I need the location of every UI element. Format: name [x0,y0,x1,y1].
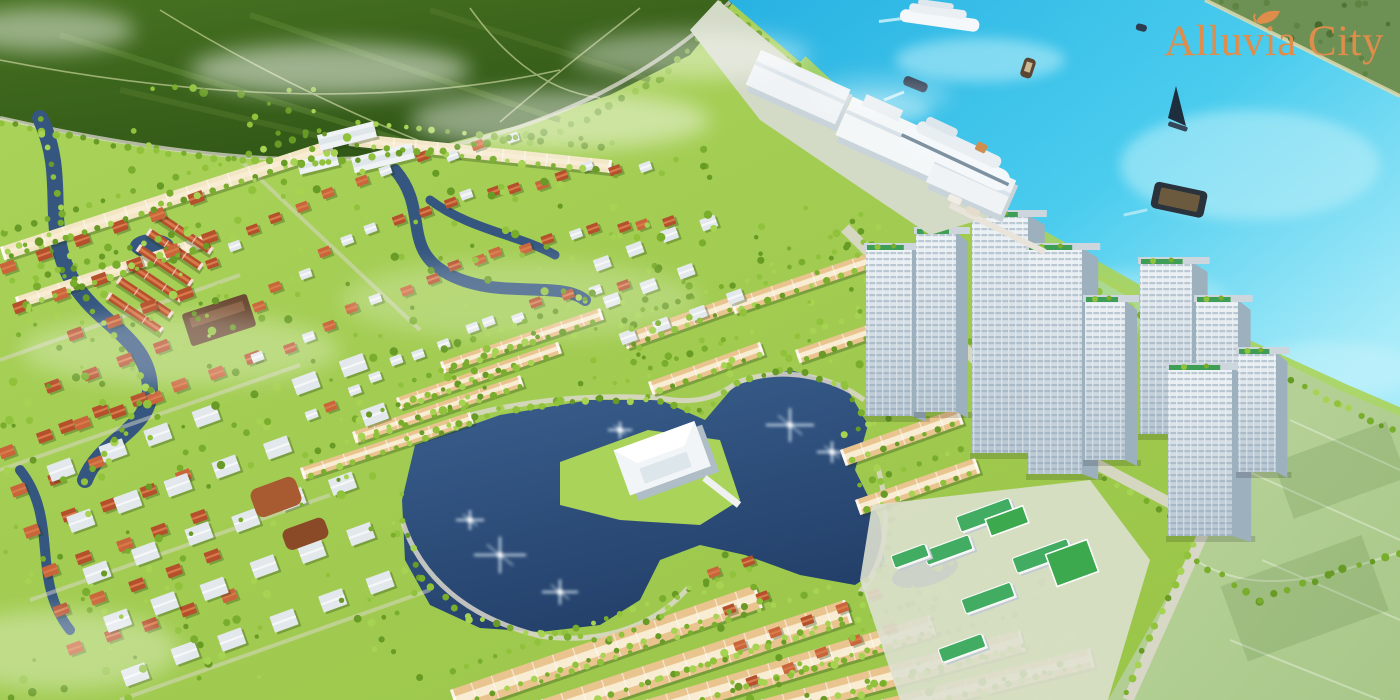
tree [1204,567,1211,574]
tree [99,254,105,260]
tree [505,159,509,163]
tree [459,384,465,390]
tree [449,367,454,372]
tree [67,289,72,294]
tree [478,659,483,664]
tree [807,300,811,304]
tree [223,619,230,626]
tree [757,352,763,358]
tree [493,620,501,628]
tree [1177,568,1184,575]
tree [128,262,135,269]
tree [53,312,60,319]
tree [797,661,802,666]
tree [338,157,346,165]
tree [648,366,653,371]
tree [665,605,671,611]
tree [0,422,6,428]
tree [801,634,805,638]
tree [504,686,510,692]
tree [697,408,702,413]
tree [629,606,636,613]
tree [267,102,271,106]
tree [142,184,148,190]
tree [535,161,540,166]
tree [46,384,51,389]
tree [237,90,245,98]
tree [289,136,296,143]
tree [398,382,404,388]
tree [702,345,708,351]
tree [688,630,693,635]
tree [643,644,648,649]
tree [877,478,884,485]
tree [504,349,509,354]
tree [356,417,363,424]
tree [410,545,417,552]
tree [9,278,15,284]
tree [863,506,870,513]
tree [169,291,178,300]
tree [712,622,718,628]
tree [63,235,69,241]
tree [195,222,201,228]
tree [433,426,440,433]
tree [787,367,793,373]
tree [339,598,344,603]
tree [175,627,182,634]
tree [634,234,641,241]
tree [534,639,541,646]
tree [326,573,331,578]
tree [1359,413,1365,419]
tree [270,520,277,527]
tree [378,334,383,339]
tree [366,411,372,417]
tree [70,280,78,288]
tree [245,151,252,158]
tree [267,169,273,175]
tree [684,406,691,413]
tree [31,220,38,227]
tree [3,550,8,555]
tree [257,418,264,425]
tree [713,614,719,620]
tree [795,333,801,339]
tree [329,378,333,382]
tree [569,255,575,261]
tree [349,459,355,465]
tree [180,197,187,204]
tree [698,663,703,668]
tree [412,378,417,383]
tree [1329,570,1335,576]
tree [528,360,534,366]
tree [183,449,189,455]
tree [151,207,157,213]
tree [645,679,651,685]
tree [613,655,618,660]
tree [584,664,590,670]
tree [545,672,550,677]
tree [865,679,870,684]
tree [1184,552,1192,560]
tree [498,184,505,191]
tree [495,368,501,374]
tree [371,646,377,652]
tree [354,615,362,623]
tree [381,615,386,620]
tree [619,632,625,638]
tree [799,669,805,675]
tree [496,406,501,411]
tree [447,187,455,195]
tree [404,402,411,409]
tree [520,644,526,650]
tree [51,174,57,180]
tree [1334,400,1341,407]
tree [170,256,178,264]
tree [490,156,497,163]
tree [194,192,201,199]
tree [446,389,452,395]
tree [181,151,186,156]
tree [57,554,63,560]
tree [1139,648,1145,654]
tree [414,149,421,156]
tree [488,374,495,381]
tree [502,227,510,235]
tree [922,432,927,437]
tree [610,204,618,212]
tree [835,692,842,699]
tree [359,169,365,175]
tree [281,179,288,186]
tree [631,627,636,632]
tree [604,616,609,621]
tree [715,577,720,582]
tree [448,405,453,410]
tree [501,369,507,375]
tree [141,241,147,247]
tree [578,381,584,387]
tree [257,675,261,679]
tree [649,327,656,334]
tree [787,246,791,250]
tree [73,206,79,212]
tree [54,190,61,197]
tree [645,602,650,607]
tree [466,421,472,427]
tree [285,107,291,113]
tree [127,245,133,251]
tree [570,399,575,404]
tree [684,624,689,629]
tree [391,649,396,654]
tree [780,350,787,357]
tree [705,661,711,667]
tree [671,326,678,333]
tree [197,641,204,648]
tree [657,398,663,404]
tree [642,356,646,360]
tree [816,376,823,383]
tree [719,284,724,289]
tree [741,612,747,618]
tree [716,581,724,589]
tree [489,691,495,697]
tree [748,649,754,655]
tree [204,657,212,665]
tree [865,451,871,457]
tree [82,229,88,235]
tree [295,292,300,297]
tree [232,615,241,624]
tree [99,381,105,387]
tree [252,114,259,121]
tree [251,156,259,164]
tree [18,282,23,287]
tree [427,583,435,591]
tree [147,261,154,268]
tree [958,446,964,452]
tree [164,247,168,251]
tree [1342,3,1347,8]
tree [687,585,692,590]
tree [45,216,51,222]
tree [698,619,703,624]
tree [804,356,809,361]
tree [518,160,526,168]
tree [84,258,90,264]
tree [460,154,464,158]
tree [554,401,560,407]
tree [473,379,479,385]
tree [569,668,575,674]
tree [251,578,257,584]
tree [787,265,792,270]
tree [631,342,636,347]
tree [757,598,764,605]
tree [379,636,385,642]
scene-canvas [0,0,1400,700]
tree [471,413,478,420]
tree [172,84,178,90]
tree [125,549,130,554]
tree [1194,558,1200,564]
tree [746,375,753,382]
tree [275,140,282,147]
tree [674,356,679,361]
tree [734,380,741,387]
tree [802,369,809,376]
tree [302,129,308,135]
tree [967,471,972,476]
tree [670,402,677,409]
tree [344,474,349,479]
tree [199,88,208,97]
tree [483,345,491,353]
tree [53,293,58,298]
tree [626,379,630,383]
tree [302,452,308,458]
tree [935,426,942,433]
tree [168,231,175,238]
tree [464,664,469,669]
tree [727,308,732,313]
tree [617,611,623,617]
tree [273,383,281,391]
tree [355,157,361,163]
tree [557,667,563,673]
tree [353,333,357,337]
tree [128,413,135,420]
tree [172,174,179,181]
tree [130,188,136,194]
tree [626,643,633,650]
tree [850,219,856,225]
tree [315,447,322,454]
tree [116,194,121,199]
tree [872,650,878,656]
tree [239,157,246,164]
tree [699,626,704,631]
tree [226,156,232,162]
tree [659,595,666,602]
tree [405,533,410,538]
tree [707,175,712,180]
tree [404,436,409,441]
tree [395,611,400,616]
tree [591,621,596,626]
tree [859,653,866,660]
tree [660,639,665,644]
tree [224,294,229,299]
tree [1257,598,1263,604]
tree [729,282,735,288]
tree [775,677,780,682]
tree [539,679,543,683]
tree [683,378,689,384]
tree [28,688,37,697]
tree [917,461,922,466]
tree [1102,476,1107,481]
tree [238,518,243,523]
tree [367,598,371,602]
tree [608,691,615,698]
tree [442,594,449,601]
tree [5,416,14,425]
tree [858,409,865,416]
tree [761,373,766,378]
tree [849,653,853,657]
tree [167,202,173,208]
tree [665,352,673,360]
tree [218,652,226,660]
tree [869,476,876,483]
tree [321,469,327,475]
tree [108,221,114,227]
tree [636,345,642,351]
tree [787,598,792,603]
tree [58,210,65,217]
tree [591,637,597,643]
tree [831,661,839,669]
tree [400,492,405,497]
tree [886,471,893,478]
tree [531,676,538,683]
tree [755,304,760,309]
tree [721,337,726,342]
tree [657,675,663,681]
tree [180,555,186,561]
tower [914,227,972,418]
tree [243,429,250,436]
tree [491,353,496,358]
tree [555,673,561,679]
tree [831,381,837,387]
tree [932,455,938,461]
tree [386,424,391,429]
tree [250,390,258,398]
tree [726,370,734,378]
tree [870,680,878,688]
tree [231,156,236,161]
tree [761,679,768,686]
tree [143,400,152,409]
tree [643,397,648,402]
tree [859,602,866,609]
tree [38,116,44,122]
tree [772,368,779,375]
tree [673,157,679,163]
tree [838,273,844,279]
tree [312,160,318,166]
tree [281,160,288,167]
tree [40,556,46,562]
tree [94,225,100,231]
tree [210,155,217,162]
tree [439,406,448,415]
tree [465,394,470,399]
tree [671,628,678,635]
tree [839,621,845,627]
tree [513,406,520,413]
tree [45,271,52,278]
tree [607,636,613,642]
tree [771,602,777,608]
tree [639,682,644,687]
tree [909,491,916,498]
tree [101,451,107,457]
tree [380,450,386,456]
tree [519,252,525,258]
tree [234,217,241,224]
tree [15,224,22,231]
tree [829,359,833,363]
tree [175,582,183,590]
tree [187,171,192,176]
tree [131,128,137,134]
tree [119,427,125,433]
tree [99,399,106,406]
tree [726,609,731,614]
tree [461,406,466,411]
tree [260,146,267,153]
tree [809,283,814,288]
tree [217,461,225,469]
tree [407,441,413,447]
